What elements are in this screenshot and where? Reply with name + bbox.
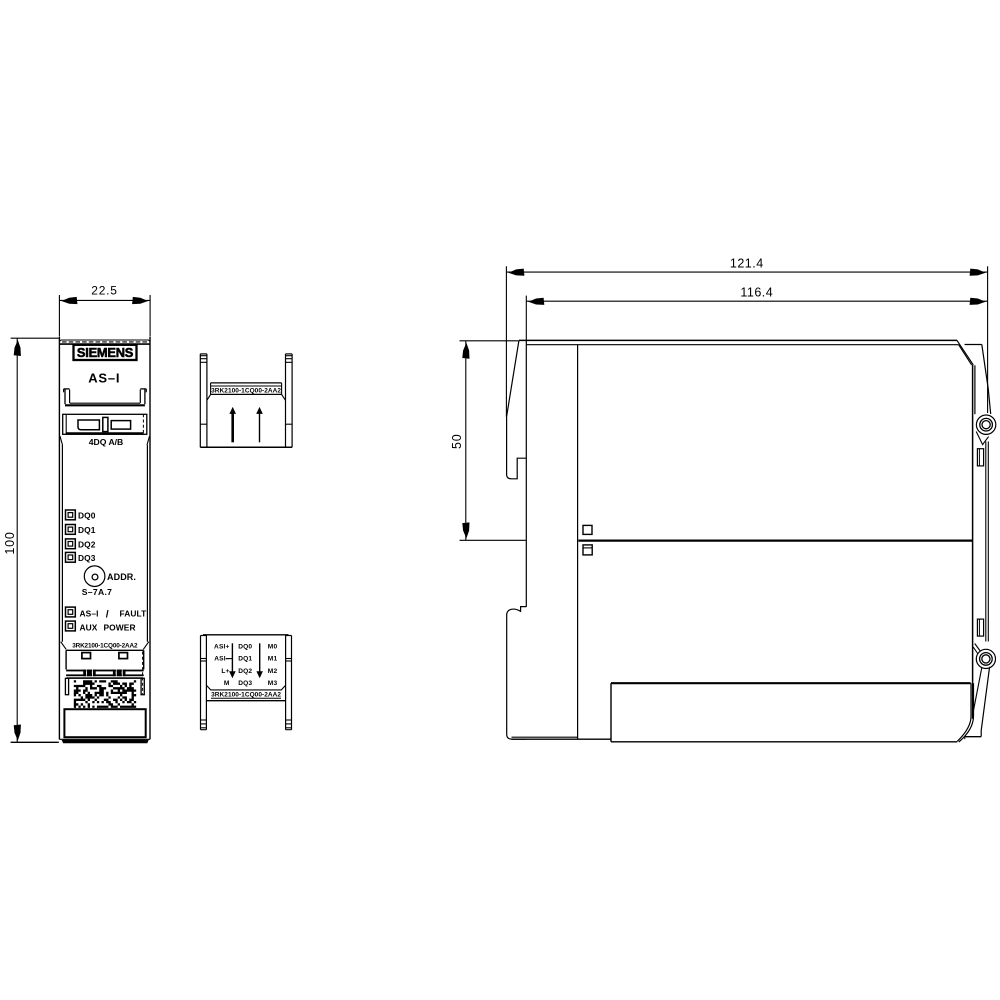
svg-text:SIEMENS: SIEMENS	[77, 345, 134, 360]
svg-text:ASI+: ASI+	[214, 644, 229, 651]
svg-text:DQ2: DQ2	[238, 668, 252, 675]
svg-text:22.5: 22.5	[91, 284, 118, 298]
svg-text:ADDR.: ADDR.	[107, 572, 136, 582]
svg-text:FAULT: FAULT	[120, 608, 148, 618]
svg-text:M2: M2	[268, 668, 278, 675]
svg-text:DQ2: DQ2	[78, 540, 96, 550]
svg-text:POWER: POWER	[104, 622, 136, 632]
svg-text:M: M	[224, 680, 230, 687]
svg-text:116.4: 116.4	[740, 286, 773, 300]
svg-text:50: 50	[450, 433, 464, 449]
svg-text:S–7A.7: S–7A.7	[82, 587, 112, 597]
svg-text:DQ3: DQ3	[78, 553, 96, 563]
svg-text:AUX: AUX	[80, 622, 98, 632]
svg-text:DQ0: DQ0	[238, 644, 252, 651]
svg-text:DQ1: DQ1	[78, 525, 96, 535]
svg-text:DQ0: DQ0	[78, 511, 96, 521]
svg-text:AS–I: AS–I	[88, 371, 120, 386]
svg-text:121.4: 121.4	[730, 256, 764, 270]
svg-text:DQ3: DQ3	[238, 680, 252, 687]
svg-text:4DQ A/B: 4DQ A/B	[89, 437, 124, 447]
svg-text:M1: M1	[268, 656, 278, 663]
svg-text:100: 100	[3, 531, 17, 554]
svg-text:L+: L+	[221, 668, 229, 675]
svg-text:3RK2100-1CQ00-2AA2: 3RK2100-1CQ00-2AA2	[211, 388, 281, 395]
svg-text:3RK2100-1CQ00-2AA2: 3RK2100-1CQ00-2AA2	[72, 642, 138, 649]
svg-text:DQ1: DQ1	[238, 656, 252, 663]
svg-text:3RK2100-1CQ00-2AA2: 3RK2100-1CQ00-2AA2	[211, 692, 281, 699]
svg-text:M0: M0	[268, 644, 278, 651]
svg-text:AS–I: AS–I	[80, 608, 99, 618]
svg-text:/: /	[106, 609, 109, 621]
svg-text:M3: M3	[268, 680, 278, 687]
